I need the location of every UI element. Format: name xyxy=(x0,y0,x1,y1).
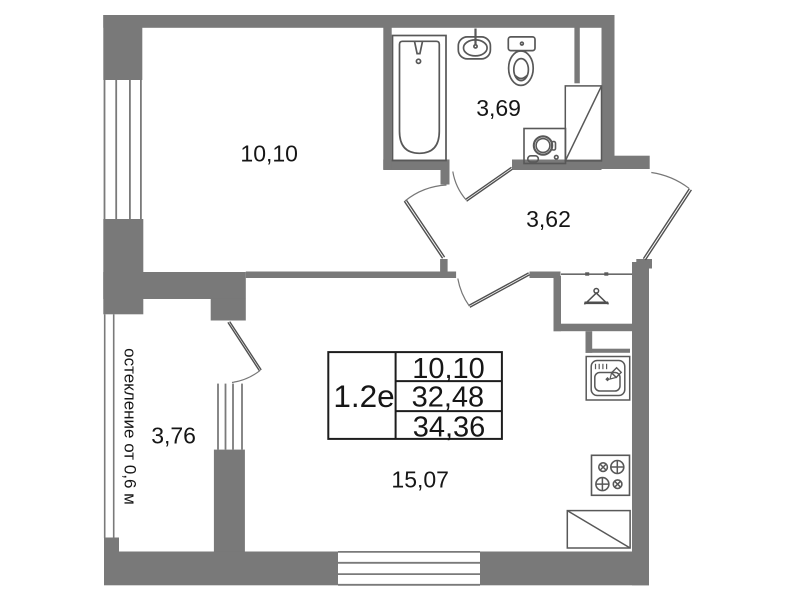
svg-text:32,48: 32,48 xyxy=(412,381,485,413)
svg-text:15,07: 15,07 xyxy=(391,467,449,493)
svg-text:10,10: 10,10 xyxy=(240,141,298,167)
svg-text:10,10: 10,10 xyxy=(412,353,485,385)
svg-text:3,62: 3,62 xyxy=(526,206,571,232)
svg-text:остекление от 0,6 м: остекление от 0,6 м xyxy=(121,348,140,505)
svg-text:3,76: 3,76 xyxy=(151,423,196,449)
svg-text:1.2e: 1.2e xyxy=(333,378,394,414)
svg-text:34,36: 34,36 xyxy=(413,411,486,443)
svg-text:3,69: 3,69 xyxy=(476,95,521,121)
